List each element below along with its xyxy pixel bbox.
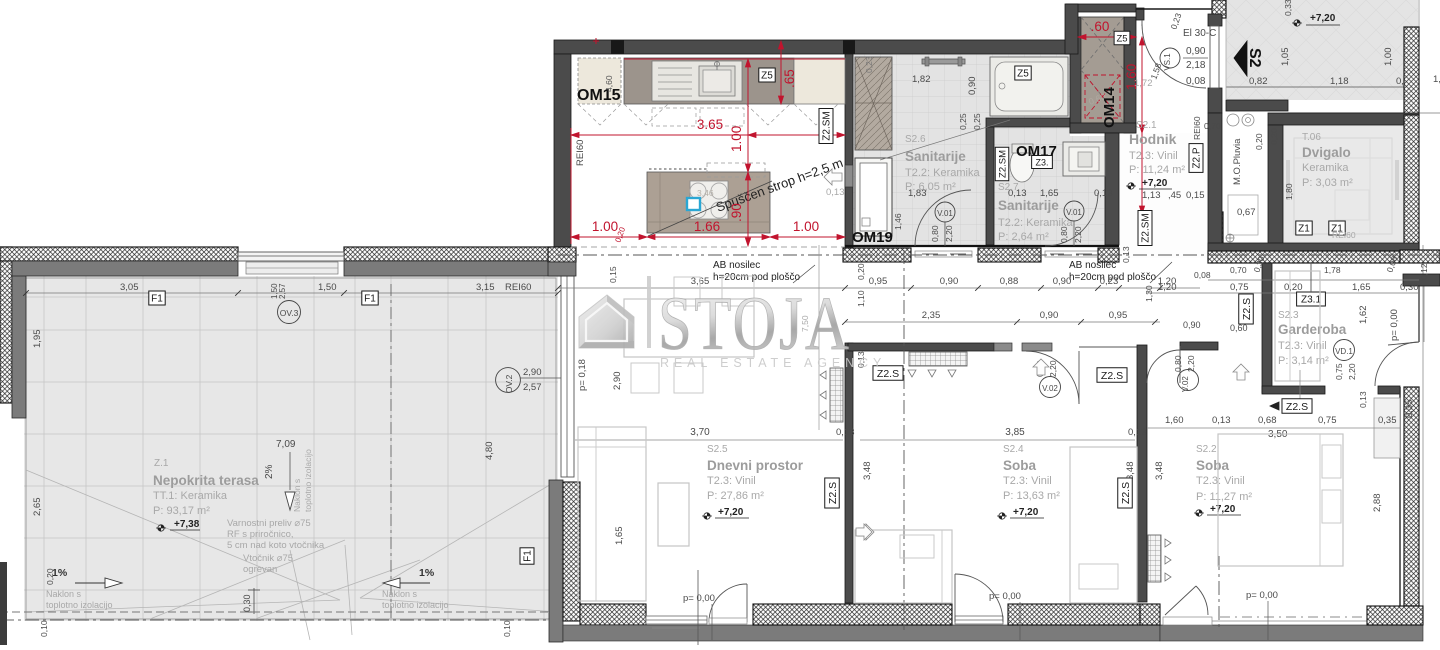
- svg-text:2,20: 2,20: [1186, 355, 1196, 372]
- svg-text:toplotno izolacijo: toplotno izolacijo: [303, 449, 313, 512]
- svg-text:2,88: 2,88: [1372, 494, 1383, 513]
- svg-text:1,72: 1,72: [1134, 78, 1153, 89]
- svg-text:p= 0,00: p= 0,00: [989, 591, 1021, 602]
- svg-text:0,13: 0,13: [1212, 415, 1231, 426]
- svg-text:OM19: OM19: [852, 229, 893, 246]
- svg-text:3,05: 3,05: [120, 282, 139, 293]
- svg-text:S2.5: S2.5: [707, 444, 728, 455]
- svg-text:4,60: 4,60: [604, 75, 614, 92]
- svg-text:Z2.S: Z2.S: [1286, 401, 1308, 413]
- svg-text:0,08: 0,08: [1186, 76, 1206, 87]
- svg-text:0,20: 0,20: [45, 568, 55, 585]
- svg-text:V.01: V.01: [1066, 208, 1082, 217]
- svg-text:V.02: V.02: [1181, 376, 1190, 392]
- svg-text:1,20: 1,20: [1158, 282, 1177, 293]
- svg-text:1,83: 1,83: [908, 188, 927, 199]
- svg-text:Dnevni prostor: Dnevni prostor: [707, 458, 804, 473]
- svg-text:1,82: 1,82: [912, 74, 931, 85]
- svg-text:.65: .65: [782, 69, 797, 88]
- svg-text:0,35: 0,35: [1378, 415, 1397, 426]
- svg-text:AB nosilec: AB nosilec: [713, 260, 760, 271]
- svg-text:Z2.SM: Z2.SM: [997, 150, 1008, 178]
- svg-text:0,90: 0,90: [1183, 320, 1201, 330]
- svg-text:4,80: 4,80: [484, 442, 495, 461]
- svg-text:Z3.1: Z3.1: [1301, 295, 1321, 306]
- svg-text:2%: 2%: [264, 464, 275, 479]
- svg-text:1,00: 1,00: [1383, 48, 1394, 67]
- svg-text:p= 0,00: p= 0,00: [1389, 309, 1400, 341]
- svg-text:0,25: 0,25: [958, 113, 968, 130]
- svg-text:1,13: 1,13: [1142, 190, 1161, 201]
- svg-text:Sanitarije: Sanitarije: [905, 149, 966, 164]
- svg-text:P: 3,14 m²: P: 3,14 m²: [1278, 355, 1329, 367]
- svg-text:T.06: T.06: [1302, 132, 1321, 143]
- svg-text:1,65: 1,65: [1352, 282, 1371, 293]
- svg-text:0,67: 0,67: [1237, 207, 1256, 218]
- svg-text:.60: .60: [1091, 19, 1110, 34]
- svg-text:Z5: Z5: [1017, 69, 1029, 80]
- svg-text:0,13: 0,13: [1128, 427, 1147, 438]
- svg-text:V.02: V.02: [1042, 384, 1058, 393]
- svg-text:3,48: 3,48: [1154, 462, 1165, 481]
- svg-text:2,20: 2,20: [944, 225, 954, 242]
- svg-text:0,95: 0,95: [1109, 310, 1128, 321]
- svg-text:0,90: 0,90: [1186, 46, 1206, 57]
- svg-text:Nepokrita terasa: Nepokrita terasa: [153, 473, 259, 488]
- svg-text:Z2.S: Z2.S: [1120, 482, 1132, 504]
- svg-text:0,90: 0,90: [940, 276, 959, 287]
- svg-text:S2.3: S2.3: [1278, 310, 1299, 321]
- svg-text:Z2.P: Z2.P: [1192, 147, 1203, 168]
- svg-text:Z3.: Z3.: [1035, 157, 1048, 167]
- svg-text:Hodnik: Hodnik: [1129, 131, 1177, 147]
- svg-text:7,09: 7,09: [276, 439, 296, 450]
- svg-text:REI60: REI60: [575, 140, 586, 166]
- svg-text:+7,20: +7,20: [1310, 13, 1336, 24]
- svg-text:P: 11,27 m²: P: 11,27 m²: [1196, 491, 1252, 503]
- svg-text:3,85: 3,85: [1005, 427, 1025, 438]
- svg-text:OV.3: OV.3: [280, 308, 299, 318]
- svg-text:0,30: 0,30: [242, 594, 252, 612]
- svg-text:V.01: V.01: [937, 209, 953, 218]
- svg-text:Soba: Soba: [1003, 458, 1036, 473]
- svg-text:p= 0,00: p= 0,00: [683, 593, 715, 604]
- svg-text:0,90: 0,90: [1053, 276, 1072, 287]
- svg-text:0,23: 0,23: [1100, 276, 1119, 287]
- svg-text:0,10: 0,10: [39, 620, 49, 637]
- svg-text:S2.4: S2.4: [1003, 444, 1024, 455]
- svg-text:.90: .90: [729, 203, 744, 222]
- svg-text:Soba: Soba: [1196, 458, 1229, 473]
- svg-text:Z1: Z1: [1298, 224, 1310, 235]
- svg-text:1,46: 1,46: [893, 213, 903, 230]
- svg-text:0,70: 0,70: [1230, 265, 1247, 275]
- svg-text:0,80: 0,80: [1173, 355, 1183, 372]
- svg-text:P: 27,86 m²: P: 27,86 m²: [707, 490, 764, 502]
- svg-text:M.O.Pluvia: M.O.Pluvia: [1232, 138, 1243, 185]
- svg-text:3,48: 3,48: [862, 462, 873, 481]
- svg-text:3,15: 3,15: [476, 282, 495, 293]
- svg-text:S2.1: S2.1: [1136, 120, 1157, 131]
- svg-text:1,60: 1,60: [1165, 415, 1184, 426]
- svg-text:T2.3: Vinil: T2.3: Vinil: [1129, 150, 1178, 162]
- svg-text:2,20: 2,20: [1073, 226, 1083, 243]
- svg-text:S2: S2: [1246, 48, 1263, 68]
- svg-text:T2.2: Keramika: T2.2: Keramika: [905, 167, 980, 179]
- svg-text:T2.3: Vinil: T2.3: Vinil: [1196, 475, 1245, 487]
- svg-text:p= 0,18: p= 0,18: [577, 359, 588, 391]
- svg-text:Z2.SM: Z2.SM: [1141, 213, 1152, 242]
- svg-text:0,23: 0,23: [864, 56, 874, 73]
- svg-text:0,13: 0,13: [1358, 391, 1368, 408]
- svg-text:2,35: 2,35: [922, 310, 941, 321]
- svg-text:0,08: 0,08: [1194, 270, 1211, 280]
- svg-text:0,75: 0,75: [1318, 415, 1337, 426]
- svg-text:STOJA: STOJA: [658, 282, 851, 366]
- svg-text:3,46: 3,46: [697, 188, 714, 198]
- svg-text:0,15: 0,15: [1186, 190, 1205, 201]
- svg-text:+7,38: +7,38: [174, 519, 200, 530]
- svg-text:0,90: 0,90: [967, 77, 978, 96]
- svg-text:2,20: 2,20: [1347, 363, 1357, 380]
- svg-text:ogrevan: ogrevan: [243, 564, 277, 575]
- svg-text:Sanitarije: Sanitarije: [998, 198, 1059, 213]
- svg-text:2,90: 2,90: [612, 372, 623, 391]
- svg-text:P: 3,03 m²: P: 3,03 m²: [1302, 177, 1353, 189]
- svg-text:2,20: 2,20: [1048, 360, 1058, 377]
- svg-text:P: 93,17 m²: P: 93,17 m²: [153, 505, 210, 517]
- svg-text:2,57: 2,57: [278, 283, 287, 299]
- svg-text:0,75: 0,75: [1230, 282, 1249, 293]
- svg-text:+7,20: +7,20: [1142, 178, 1168, 189]
- svg-text:2,90: 2,90: [523, 367, 542, 378]
- svg-text:0,30: 0,30: [1400, 282, 1419, 293]
- svg-text:Varnostni preliv ⌀75: Varnostni preliv ⌀75: [227, 518, 311, 529]
- svg-text:1.00: 1.00: [729, 126, 744, 152]
- svg-text:0,75: 0,75: [1334, 363, 1344, 380]
- svg-text:1,95: 1,95: [32, 330, 43, 349]
- svg-text:F1: F1: [151, 294, 163, 305]
- svg-text:0,13: 0,13: [826, 187, 845, 198]
- svg-text:0,15: 0,15: [608, 266, 618, 283]
- svg-text:Z5: Z5: [761, 71, 773, 82]
- svg-text:Z2.S: Z2.S: [1101, 370, 1123, 382]
- svg-text:S2.2: S2.2: [1196, 444, 1217, 455]
- svg-text:OM15: OM15: [577, 87, 621, 104]
- svg-text:1,62: 1,62: [1358, 306, 1369, 325]
- svg-text:TT.1: Keramika: TT.1: Keramika: [153, 490, 228, 502]
- svg-text:0,60: 0,60: [1230, 323, 1248, 333]
- svg-text:0,33: 0,33: [1283, 0, 1293, 16]
- svg-text:0,35: 0,35: [1404, 400, 1415, 419]
- svg-text:0,13: 0,13: [836, 427, 855, 438]
- svg-text:REAL ESTATE AGENCY: REAL ESTATE AGENCY: [660, 356, 886, 370]
- svg-text:1,50: 1,50: [318, 282, 337, 293]
- svg-text:El 30-C: El 30-C: [1183, 28, 1216, 39]
- svg-text:0,20: 0,20: [1284, 282, 1303, 293]
- svg-text:1%: 1%: [419, 567, 435, 579]
- svg-text:,45: ,45: [1168, 190, 1181, 201]
- svg-text:Z5: Z5: [1116, 33, 1127, 44]
- svg-text:2,65: 2,65: [32, 498, 43, 517]
- svg-text:Naklon s: Naklon s: [382, 589, 418, 599]
- svg-text:0,25: 0,25: [972, 113, 982, 130]
- svg-text:T2.3: Vinil: T2.3: Vinil: [1003, 475, 1052, 487]
- svg-text:0,68: 0,68: [1258, 415, 1277, 426]
- svg-text:p= 0,00: p= 0,00: [1246, 590, 1278, 601]
- svg-text:0,88: 0,88: [1000, 276, 1019, 287]
- svg-text:T2.3: Vinil: T2.3: Vinil: [707, 475, 756, 487]
- svg-text:0,20: 0,20: [1269, 128, 1279, 145]
- svg-text:2,57: 2,57: [523, 382, 542, 393]
- svg-text:2,18: 2,18: [1186, 60, 1206, 71]
- svg-text:P: 13,63 m²: P: 13,63 m²: [1003, 490, 1060, 502]
- svg-text:Vtočnik ⌀75: Vtočnik ⌀75: [243, 553, 293, 564]
- svg-text:0,95: 0,95: [869, 276, 888, 287]
- svg-text:1.66: 1.66: [694, 219, 720, 234]
- svg-text:OV.2: OV.2: [504, 374, 514, 393]
- svg-text:1.00: 1.00: [592, 219, 618, 234]
- svg-text:Naklon s: Naklon s: [46, 589, 82, 599]
- svg-text:0,80: 0,80: [1059, 226, 1069, 243]
- svg-text:1,80: 1,80: [1284, 183, 1294, 200]
- svg-text:1,18: 1,18: [1330, 76, 1349, 87]
- svg-text:1,65: 1,65: [614, 527, 625, 546]
- svg-text:Z2.S: Z2.S: [1241, 298, 1253, 320]
- svg-text:0,10: 0,10: [502, 620, 512, 637]
- svg-text:0,20: 0,20: [1254, 133, 1264, 150]
- svg-text:Z2.SM: Z2.SM: [822, 111, 833, 140]
- svg-text:F1: F1: [523, 550, 534, 562]
- svg-text:Keramika: Keramika: [1302, 162, 1349, 174]
- svg-text:3,70: 3,70: [690, 427, 710, 438]
- svg-text:REI60: REI60: [1192, 116, 1202, 140]
- svg-text:F1: F1: [364, 294, 376, 305]
- svg-text:3,48: 3,48: [1125, 462, 1136, 481]
- svg-text:1,78: 1,78: [1324, 265, 1341, 275]
- svg-text:3.65: 3.65: [697, 117, 723, 132]
- svg-text:P: 2,64 m²: P: 2,64 m²: [998, 231, 1049, 243]
- svg-text:0,90: 0,90: [1040, 310, 1059, 321]
- svg-text:0,82: 0,82: [1249, 76, 1268, 87]
- svg-text:toplotno izolacijo: toplotno izolacijo: [46, 600, 113, 610]
- svg-text:OM14: OM14: [1101, 86, 1118, 128]
- svg-text:RF s priročnico,: RF s priročnico,: [227, 529, 294, 540]
- svg-text:+7,20: +7,20: [1210, 504, 1236, 515]
- svg-text:+7,20: +7,20: [718, 507, 744, 518]
- svg-text:REI60: REI60: [1332, 230, 1356, 240]
- svg-text:REI60: REI60: [505, 282, 531, 293]
- svg-text:Naklon s: Naklon s: [292, 479, 302, 512]
- svg-text:+7,20: +7,20: [1013, 507, 1039, 518]
- svg-text:P: 11,24 m²: P: 11,24 m²: [1129, 164, 1185, 176]
- svg-text:Dvigalo: Dvigalo: [1302, 145, 1351, 160]
- svg-text:1.00: 1.00: [793, 219, 819, 234]
- svg-text:0,20: 0,20: [856, 263, 866, 280]
- svg-text:0,12: 0,12: [1419, 263, 1429, 280]
- svg-text:Z.1: Z.1: [154, 458, 169, 469]
- svg-text:1,18: 1,18: [1433, 74, 1440, 85]
- svg-text:1,30: 1,30: [1144, 285, 1154, 302]
- svg-text:AB nosilec: AB nosilec: [1069, 260, 1116, 271]
- svg-text:VD.1: VD.1: [1335, 347, 1353, 356]
- svg-text:5 cm nad koto vtočnika: 5 cm nad koto vtočnika: [227, 540, 325, 551]
- svg-text:Garderoba: Garderoba: [1278, 322, 1347, 337]
- svg-text:0,70: 0,70: [1204, 121, 1221, 131]
- svg-text:1,05: 1,05: [1280, 48, 1291, 67]
- svg-text:S2.6: S2.6: [905, 134, 926, 145]
- svg-text:0,13: 0,13: [1094, 188, 1113, 199]
- svg-text:1,10: 1,10: [856, 290, 866, 307]
- svg-text:S2.7: S2.7: [998, 182, 1019, 193]
- svg-text:toplotno izolacijo: toplotno izolacijo: [382, 600, 449, 610]
- svg-text:Z2.S: Z2.S: [827, 482, 839, 504]
- svg-text:VS.1: VS.1: [1163, 53, 1172, 71]
- svg-text:0,80: 0,80: [930, 225, 940, 242]
